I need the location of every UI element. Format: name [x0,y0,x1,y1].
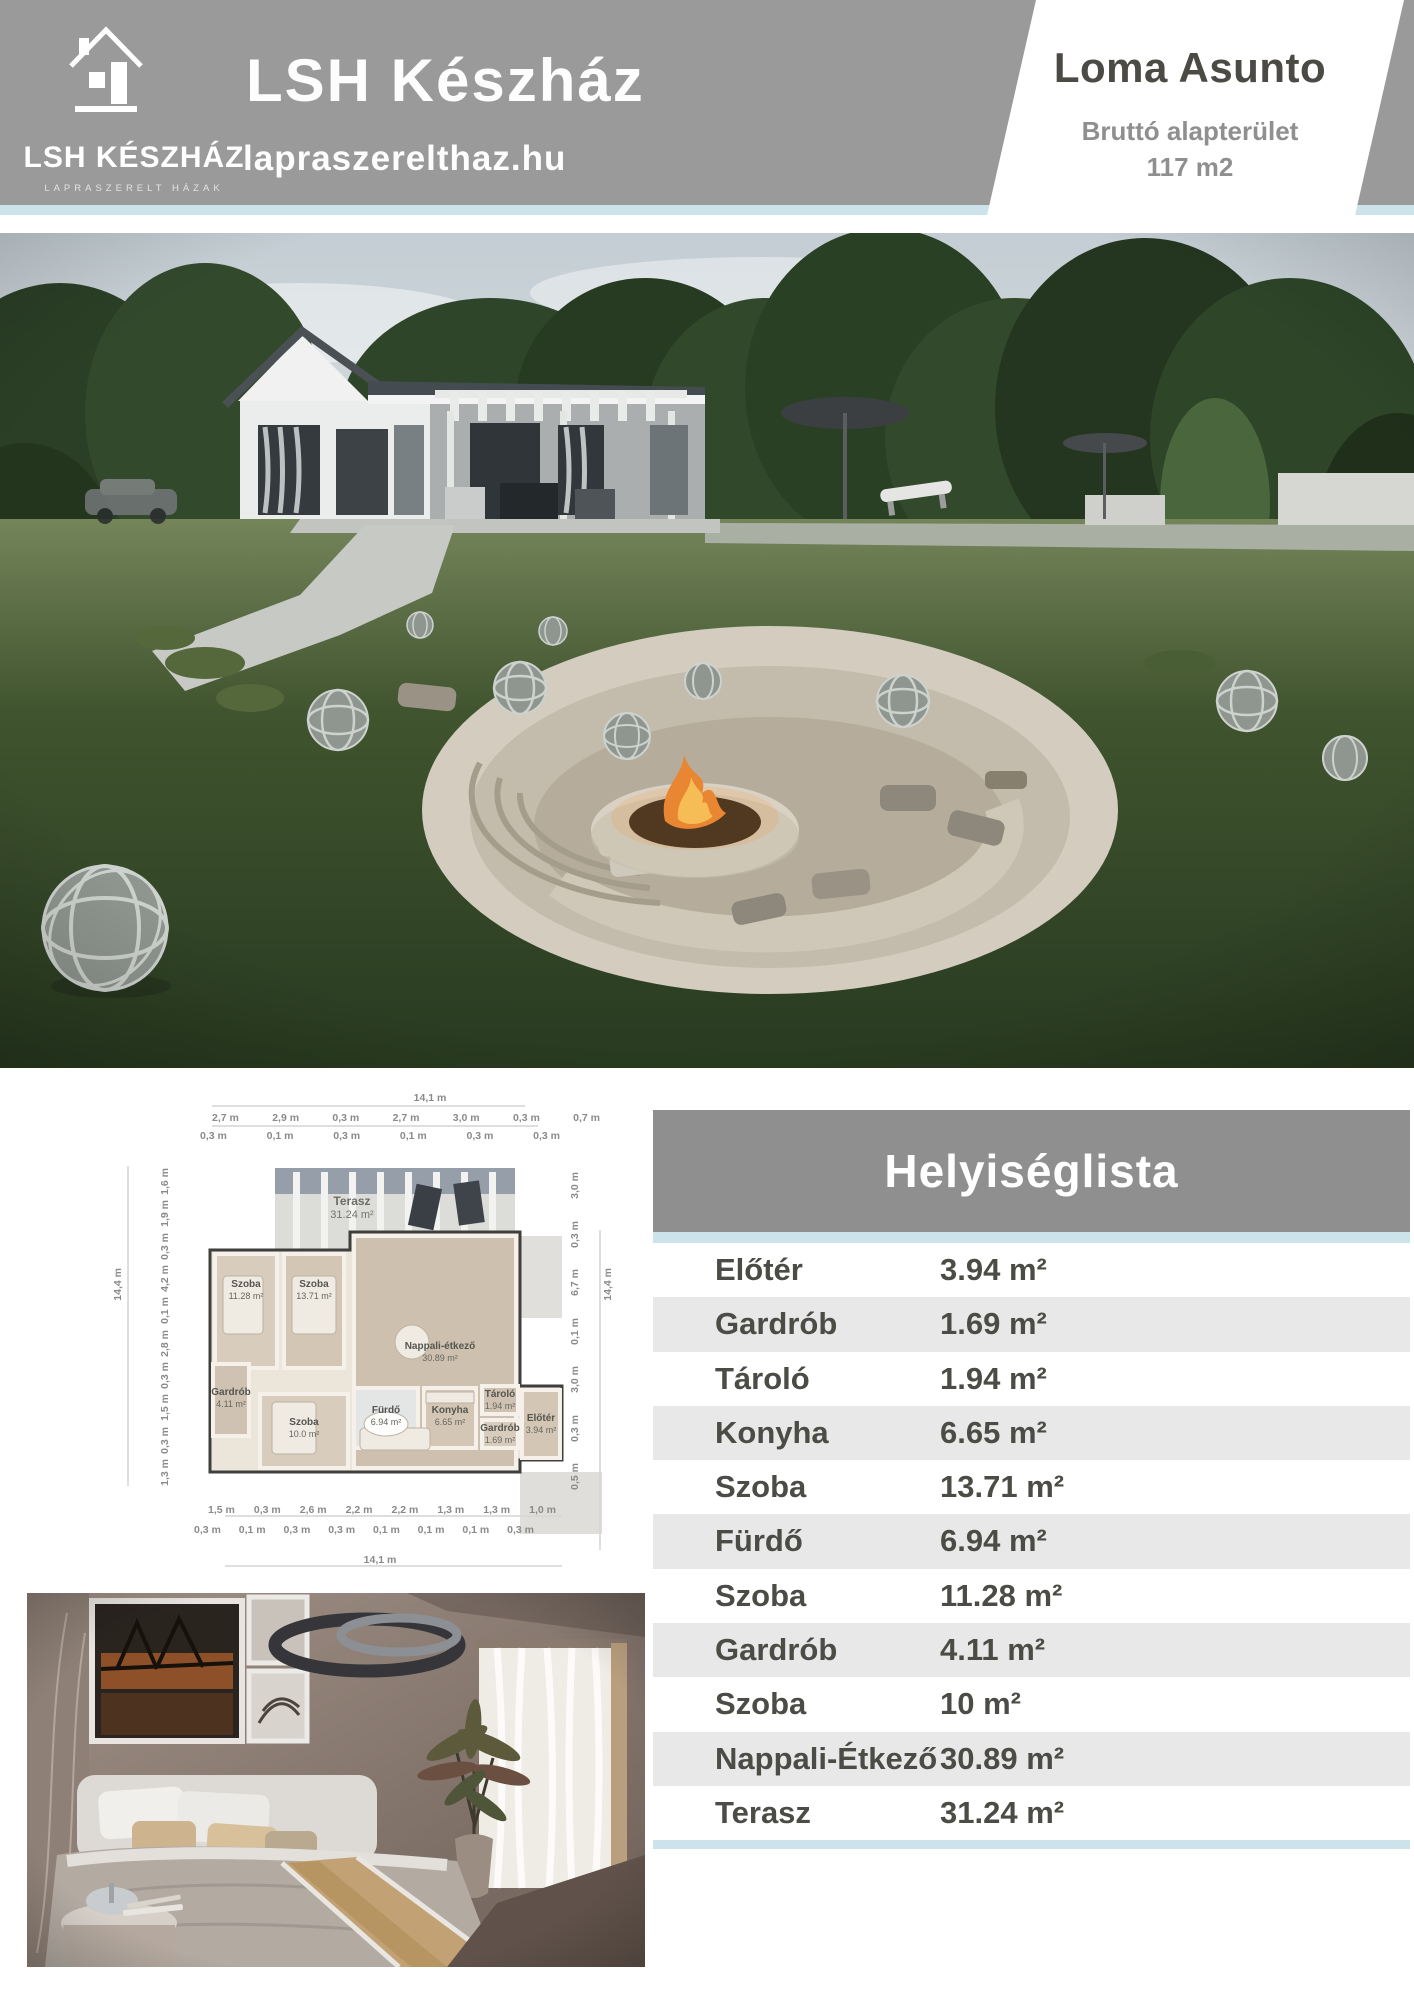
dimension-label: 0,3 m [507,1524,534,1536]
room-list-rows: Előtér3.94 m² Gardrób1.69 m² Tároló1.94 … [653,1243,1410,1840]
floorplan-room-gardrob1: Gardrób 4.11 m² [211,1387,250,1409]
dimension-label: 0,3 m [159,1233,171,1260]
table-row: Szoba10 m² [653,1677,1410,1731]
floorplan-room-tarolo: Tároló 1.94 m² [485,1389,516,1411]
dimension-label: 0,3 m [200,1130,227,1142]
table-row: Konyha6.65 m² [653,1406,1410,1460]
dimension-label: 2,9 m [272,1112,299,1124]
floorplan-dims-top-main: 2,7 m2,9 m0,3 m2,7 m3,0 m0,3 m0,7 m [212,1112,600,1124]
floorplan-dims-left: 1,6 m1,9 m0,3 m4,2 m0,1 m2,8 m0,3 m1,5 m… [158,1168,172,1486]
table-row: Nappali-Étkező30.89 m² [653,1732,1410,1786]
bedroom-render-photo [27,1593,645,1967]
dimension-label: 0,3 m [332,1112,359,1124]
dimension-label: 3,0 m [569,1172,581,1199]
gross-area-label: Bruttó alapterület [1010,116,1370,147]
floorplan-dim-total-bottom: 14,1 m [320,1554,440,1566]
exterior-render-photo [0,233,1414,1068]
dimension-label: 6,7 m [569,1269,581,1296]
dimension-label: 2,8 m [159,1330,171,1357]
dimension-label: 0,1 m [462,1524,489,1536]
dimension-label: 1,9 m [159,1200,171,1227]
dimension-label: 2,2 m [392,1504,419,1516]
dimension-label: 0,3 m [333,1130,360,1142]
floorplan-dim-total-right: 14,4 m [602,1268,614,1306]
table-row: Terasz31.24 m² [653,1786,1410,1840]
floorplan-dim-total-left: 14,4 m [112,1268,124,1306]
table-row: Tároló1.94 m² [653,1352,1410,1406]
model-banner: Loma Asunto Bruttó alapterület 117 m2 [1010,44,1370,183]
table-row: Szoba13.71 m² [653,1460,1410,1514]
floorplan-room-gardrob2: Gardrób 1.69 m² [480,1423,519,1445]
dimension-label: 0,1 m [569,1318,581,1345]
dimension-label: 1,0 m [529,1504,556,1516]
floorplan-dims-top-sub: 0,3 m0,1 m0,3 m0,1 m0,3 m0,3 m [200,1130,560,1142]
table-row: Előtér3.94 m² [653,1243,1410,1297]
room-list-header: Helyiséglista [653,1110,1410,1232]
logo-wordmark: LSH KÉSZHÁZ [18,141,250,175]
dimension-label: 0,3 m [283,1524,310,1536]
dimension-label: 2,7 m [393,1112,420,1124]
dimension-label: 1,3 m [159,1459,171,1486]
dimension-label: 2,6 m [300,1504,327,1516]
dimension-label: 0,1 m [239,1524,266,1536]
dimension-label: 0,3 m [569,1415,581,1442]
dimension-label: 1,5 m [159,1394,171,1421]
website-text: lapraszerelthaz.hu [243,139,566,179]
house-logo-icon [67,18,145,125]
dimension-label: 0,3 m [513,1112,540,1124]
dimension-label: 4,2 m [159,1265,171,1292]
dimension-label: 2,2 m [346,1504,373,1516]
dimension-label: 0,3 m [328,1524,355,1536]
dimension-label: 3,0 m [569,1366,581,1393]
room-list-title: Helyiséglista [884,1144,1178,1198]
dimension-label: 0,3 m [159,1427,171,1454]
table-row: Gardrób4.11 m² [653,1623,1410,1677]
gross-area-value: 117 m2 [1010,152,1370,183]
dimension-label: 3,0 m [453,1112,480,1124]
floorplan-room-szoba1: Szoba 11.28 m² [229,1279,264,1301]
dimension-label: 0,3 m [533,1130,560,1142]
floorplan-room-nappali: Nappali-étkező 30.89 m² [405,1341,476,1363]
room-list-accent-bottom [653,1840,1410,1849]
floorplan-dim-total-top: 14,1 m [380,1092,480,1104]
dimension-label: 0,3 m [569,1221,581,1248]
dimension-label: 1,3 m [483,1504,510,1516]
floorplan-room-furdo: Fürdő 6.94 m² [371,1405,402,1427]
table-row: Gardrób1.69 m² [653,1297,1410,1351]
floorplan-room-szoba2: Szoba 13.71 m² [296,1279,332,1301]
floorplan-room-szoba3: Szoba 10.0 m² [289,1417,320,1439]
table-row: Fürdő6.94 m² [653,1514,1410,1568]
model-name: Loma Asunto [1010,44,1370,92]
dimension-label: 1,5 m [208,1504,235,1516]
dimension-label: 1,3 m [437,1504,464,1516]
dimension-label: 0,3 m [194,1524,221,1536]
company-title: LSH Készház [246,46,645,115]
flyer-page: LSH KÉSZHÁZ LAPRASZERELT HÁZAK LSH Készh… [0,0,1414,2000]
dimension-label: 0,5 m [569,1463,581,1490]
dimension-label: 0,7 m [573,1112,600,1124]
dimension-label: 0,1 m [267,1130,294,1142]
table-row: Szoba11.28 m² [653,1569,1410,1623]
dimension-label: 0,1 m [159,1297,171,1324]
floorplan-room-konyha: Konyha 6.65 m² [432,1405,469,1427]
dimension-label: 0,3 m [254,1504,281,1516]
floorplan-dims-right: 3,0 m0,3 m6,7 m0,1 m3,0 m0,3 m0,5 m [568,1172,582,1490]
dimension-label: 2,7 m [212,1112,239,1124]
floorplan-room-eloter: Előtér 3.94 m² [526,1413,557,1435]
room-list-accent-top [653,1232,1410,1243]
dimension-label: 0,3 m [467,1130,494,1142]
logo-tagline: LAPRASZERELT HÁZAK [18,183,250,194]
dimension-label: 0,3 m [159,1362,171,1389]
dimension-label: 0,1 m [373,1524,400,1536]
floorplan-room-terasz: Terasz 31.24 m² [330,1195,373,1221]
floorplan-dims-bottom-main: 1,5 m0,3 m2,6 m2,2 m2,2 m1,3 m1,3 m1,0 m [208,1504,556,1516]
dimension-label: 0,1 m [400,1130,427,1142]
dimension-label: 1,6 m [159,1168,171,1195]
floorplan-dims-bottom-sub: 0,3 m0,1 m0,3 m0,3 m0,1 m0,1 m0,1 m0,3 m [194,1524,534,1536]
floorplan: Terasz 31.24 m² Szoba 11.28 m² Szoba 13.… [60,1080,620,1590]
room-list-table: Helyiséglista Előtér3.94 m² Gardrób1.69 … [653,1110,1410,1849]
dimension-label: 0,1 m [418,1524,445,1536]
